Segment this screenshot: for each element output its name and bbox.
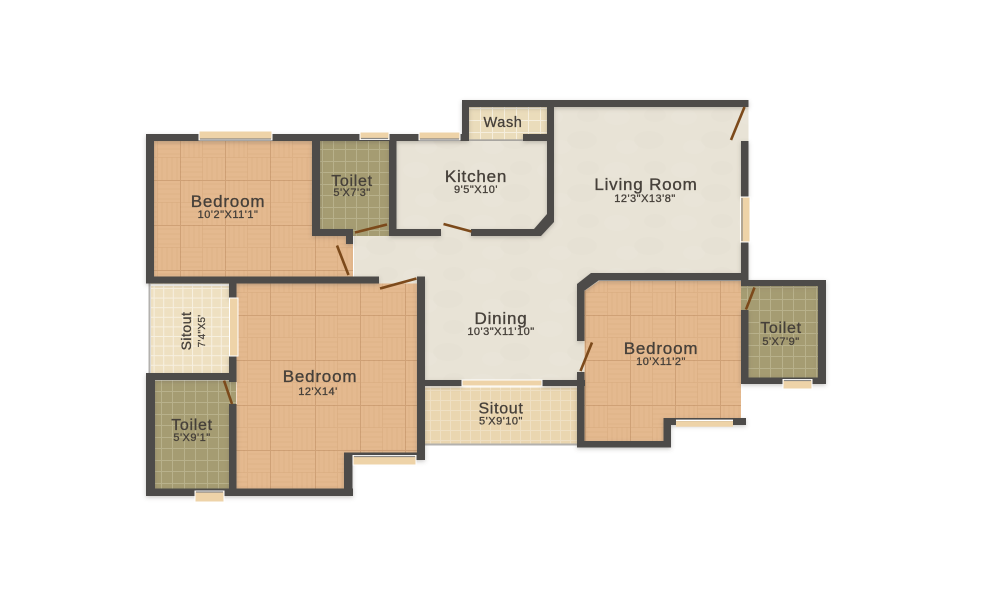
svg-text:10'2"X11'1": 10'2"X11'1" <box>198 209 259 221</box>
svg-text:9'5"X10': 9'5"X10' <box>454 184 498 196</box>
svg-text:5'X7'3": 5'X7'3" <box>333 187 370 199</box>
svg-text:5'X9'1": 5'X9'1" <box>173 432 210 444</box>
svg-text:10'3"X11'10": 10'3"X11'10" <box>467 326 534 338</box>
svg-text:12'X14': 12'X14' <box>298 386 338 398</box>
svg-text:5'X7'9": 5'X7'9" <box>762 336 799 348</box>
svg-text:Living Room: Living Room <box>594 175 697 194</box>
svg-text:Toilet: Toilet <box>760 320 802 337</box>
svg-text:7'4"X5': 7'4"X5' <box>197 315 208 348</box>
svg-text:Wash: Wash <box>484 115 523 131</box>
svg-text:Bedroom: Bedroom <box>283 367 358 386</box>
svg-text:10'X11'2": 10'X11'2" <box>636 356 686 368</box>
svg-text:Sitout: Sitout <box>178 312 194 351</box>
svg-text:12'3"X13'8": 12'3"X13'8" <box>614 193 676 205</box>
svg-text:5'X9'10": 5'X9'10" <box>479 416 523 428</box>
